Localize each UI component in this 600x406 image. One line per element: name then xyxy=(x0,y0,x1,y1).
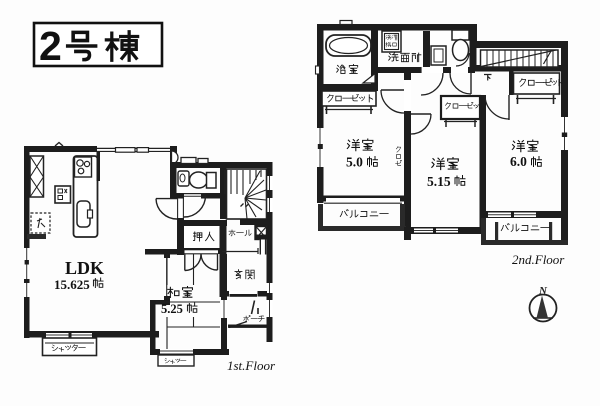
svg-text:N: N xyxy=(538,285,548,297)
svg-text:1st.Floor: 1st.Floor xyxy=(227,358,276,373)
svg-text:15.625: 15.625 xyxy=(54,277,90,292)
svg-text:LDK: LDK xyxy=(65,258,104,278)
svg-text:6.0: 6.0 xyxy=(510,154,527,169)
svg-text:5.25: 5.25 xyxy=(161,302,183,316)
svg-text:2: 2 xyxy=(39,23,62,69)
svg-text:2nd.Floor: 2nd.Floor xyxy=(512,252,565,267)
svg-text:5.0: 5.0 xyxy=(346,155,363,170)
svg-text:5.15: 5.15 xyxy=(427,174,451,189)
